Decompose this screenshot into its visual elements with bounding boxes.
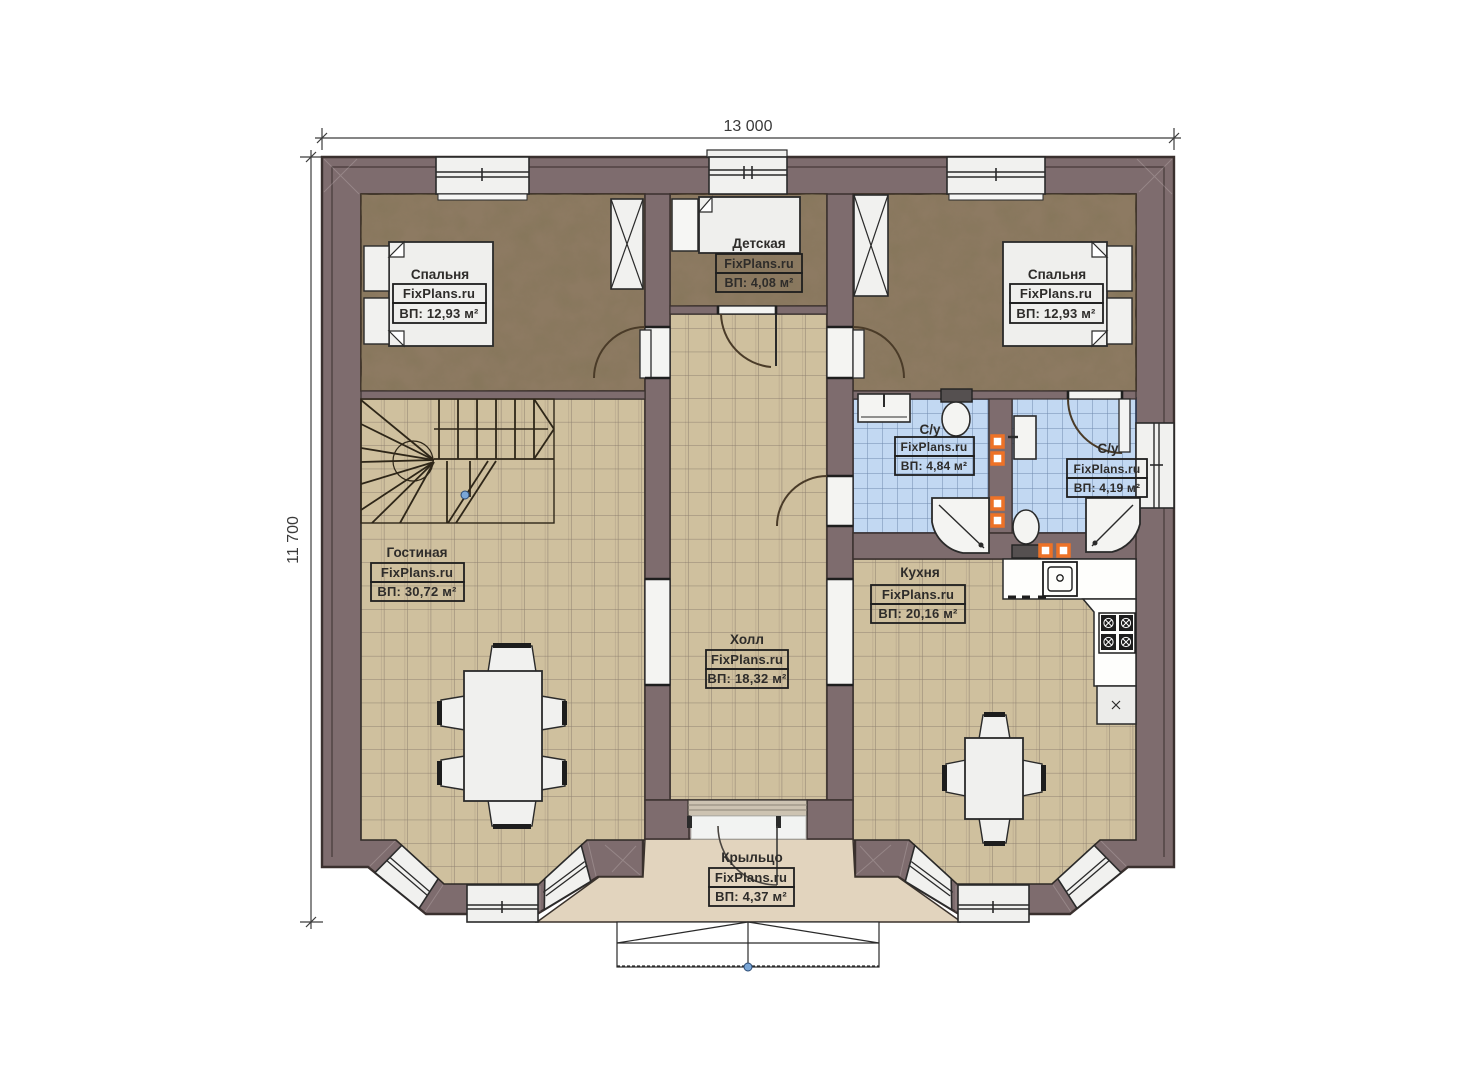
svg-text:FixPlans.ru: FixPlans.ru xyxy=(901,440,968,454)
svg-text:Крыльцо: Крыльцо xyxy=(721,850,782,865)
svg-text:ВП: 4,37 м²: ВП: 4,37 м² xyxy=(715,889,787,904)
svg-text:ВП: 30,72 м²: ВП: 30,72 м² xyxy=(377,584,457,599)
svg-text:С/у: С/у xyxy=(919,422,941,437)
svg-text:11 700: 11 700 xyxy=(285,516,302,564)
svg-text:ВП: 4,84 м²: ВП: 4,84 м² xyxy=(901,459,967,473)
svg-text:Детская: Детская xyxy=(732,236,785,251)
svg-text:FixPlans.ru: FixPlans.ru xyxy=(403,286,475,301)
svg-text:FixPlans.ru: FixPlans.ru xyxy=(882,587,954,602)
svg-text:ВП: 12,93 м²: ВП: 12,93 м² xyxy=(399,306,479,321)
svg-text:FixPlans.ru: FixPlans.ru xyxy=(715,870,787,885)
svg-text:ВП: 18,32 м²: ВП: 18,32 м² xyxy=(707,671,787,686)
svg-text:13 000: 13 000 xyxy=(724,118,773,135)
svg-text:С/у: С/у xyxy=(1097,441,1119,456)
svg-text:Гостиная: Гостиная xyxy=(386,545,447,560)
svg-text:FixPlans.ru: FixPlans.ru xyxy=(1074,462,1141,476)
svg-text:Спальня: Спальня xyxy=(411,267,469,282)
svg-text:ВП: 4,19 м²: ВП: 4,19 м² xyxy=(1074,481,1140,495)
svg-text:ВП: 4,08 м²: ВП: 4,08 м² xyxy=(724,276,793,290)
svg-text:ВП: 20,16 м²: ВП: 20,16 м² xyxy=(878,606,958,621)
svg-text:FixPlans.ru: FixPlans.ru xyxy=(724,257,794,271)
svg-text:ВП: 12,93 м²: ВП: 12,93 м² xyxy=(1016,306,1096,321)
svg-text:FixPlans.ru: FixPlans.ru xyxy=(381,565,453,580)
svg-text:FixPlans.ru: FixPlans.ru xyxy=(711,652,783,667)
svg-text:FixPlans.ru: FixPlans.ru xyxy=(1020,286,1092,301)
svg-text:Спальня: Спальня xyxy=(1028,267,1086,282)
svg-text:Холл: Холл xyxy=(730,632,764,647)
svg-text:Кухня: Кухня xyxy=(900,565,939,580)
